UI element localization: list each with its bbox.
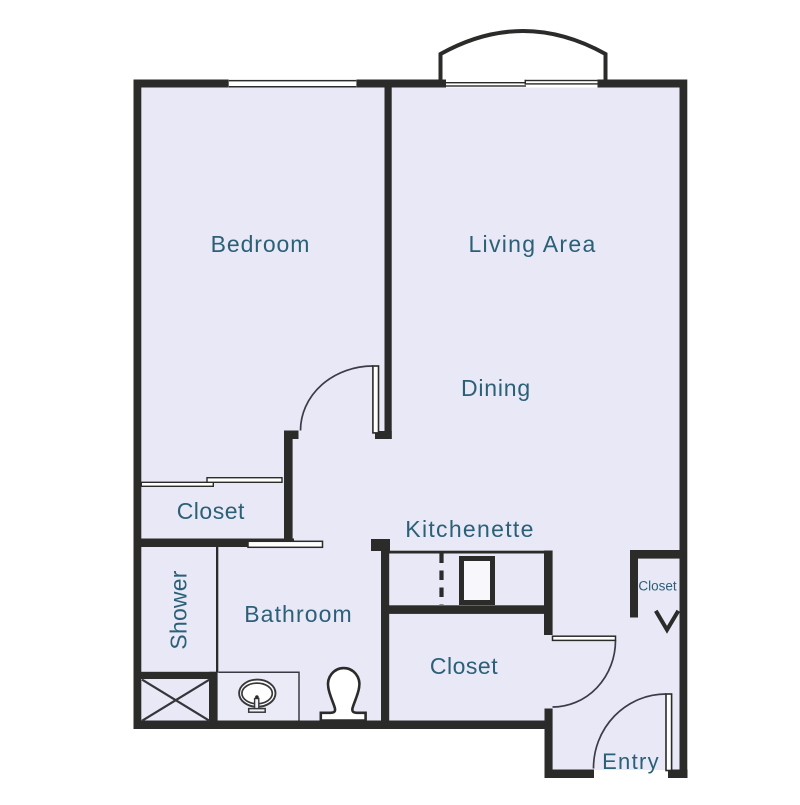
svg-text:Kitchenette: Kitchenette [405,516,534,542]
svg-text:Closet: Closet [638,579,677,594]
svg-text:Dining: Dining [461,375,531,401]
svg-text:Closet: Closet [177,498,245,524]
svg-text:Closet: Closet [430,653,498,679]
svg-text:Entry: Entry [602,749,660,774]
svg-text:Bedroom: Bedroom [211,231,311,257]
svg-text:Shower: Shower [166,570,192,649]
svg-text:Living Area: Living Area [468,231,596,257]
svg-text:Bathroom: Bathroom [244,601,353,627]
